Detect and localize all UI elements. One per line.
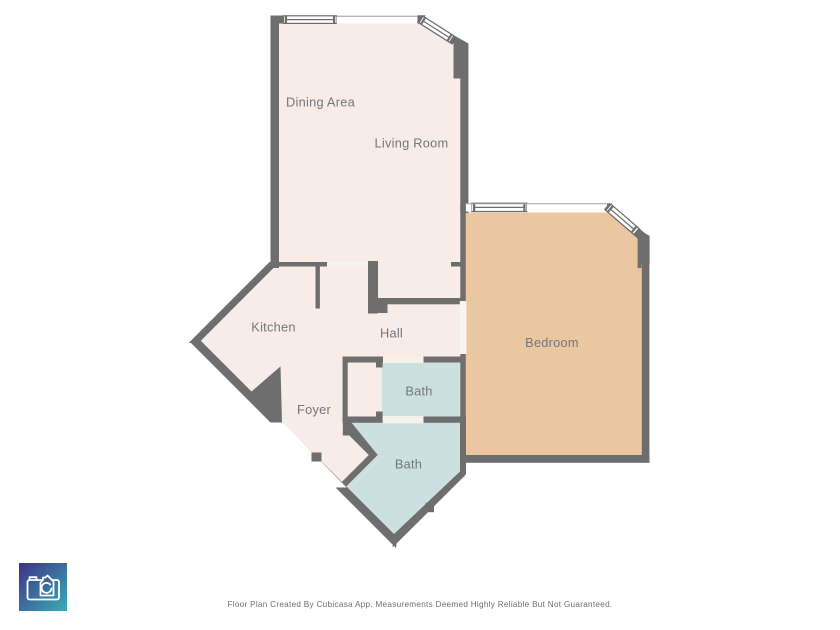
svg-text:Living Room: Living Room xyxy=(375,136,449,151)
svg-text:Dining Area: Dining Area xyxy=(286,95,356,110)
svg-text:Hall: Hall xyxy=(380,326,403,341)
svg-text:Bath: Bath xyxy=(395,457,422,472)
svg-text:Floor Plan Created By Cubicasa: Floor Plan Created By Cubicasa App. Meas… xyxy=(227,600,612,609)
svg-text:Kitchen: Kitchen xyxy=(251,320,295,335)
svg-text:Foyer: Foyer xyxy=(297,402,331,417)
svg-text:Bath: Bath xyxy=(405,384,432,399)
svg-text:Bedroom: Bedroom xyxy=(525,335,579,350)
